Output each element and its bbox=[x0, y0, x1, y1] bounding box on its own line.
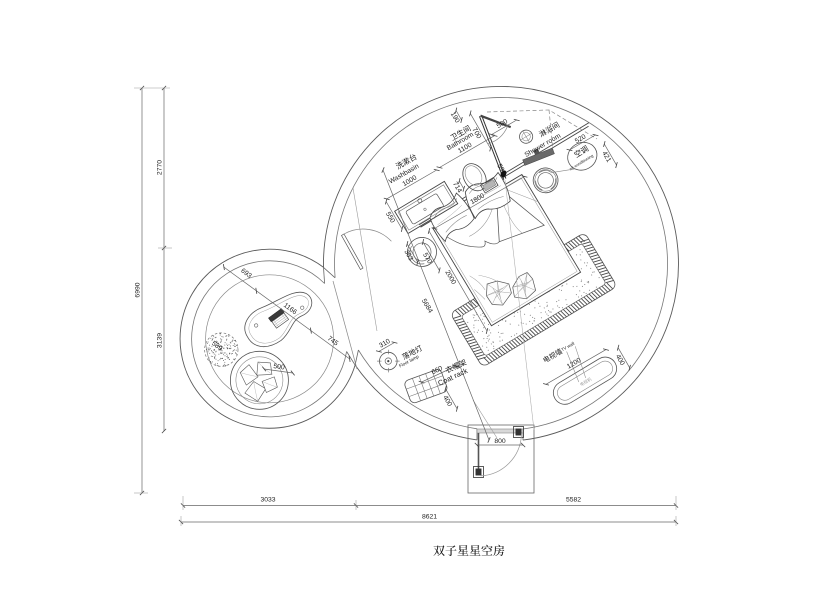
svg-text:3139: 3139 bbox=[156, 333, 163, 348]
svg-text:800: 800 bbox=[494, 438, 506, 445]
svg-text:5582: 5582 bbox=[566, 496, 581, 503]
svg-text:8621: 8621 bbox=[422, 513, 437, 520]
svg-text:3033: 3033 bbox=[260, 496, 275, 503]
svg-text:6990: 6990 bbox=[134, 282, 141, 297]
svg-text:2770: 2770 bbox=[156, 160, 163, 175]
